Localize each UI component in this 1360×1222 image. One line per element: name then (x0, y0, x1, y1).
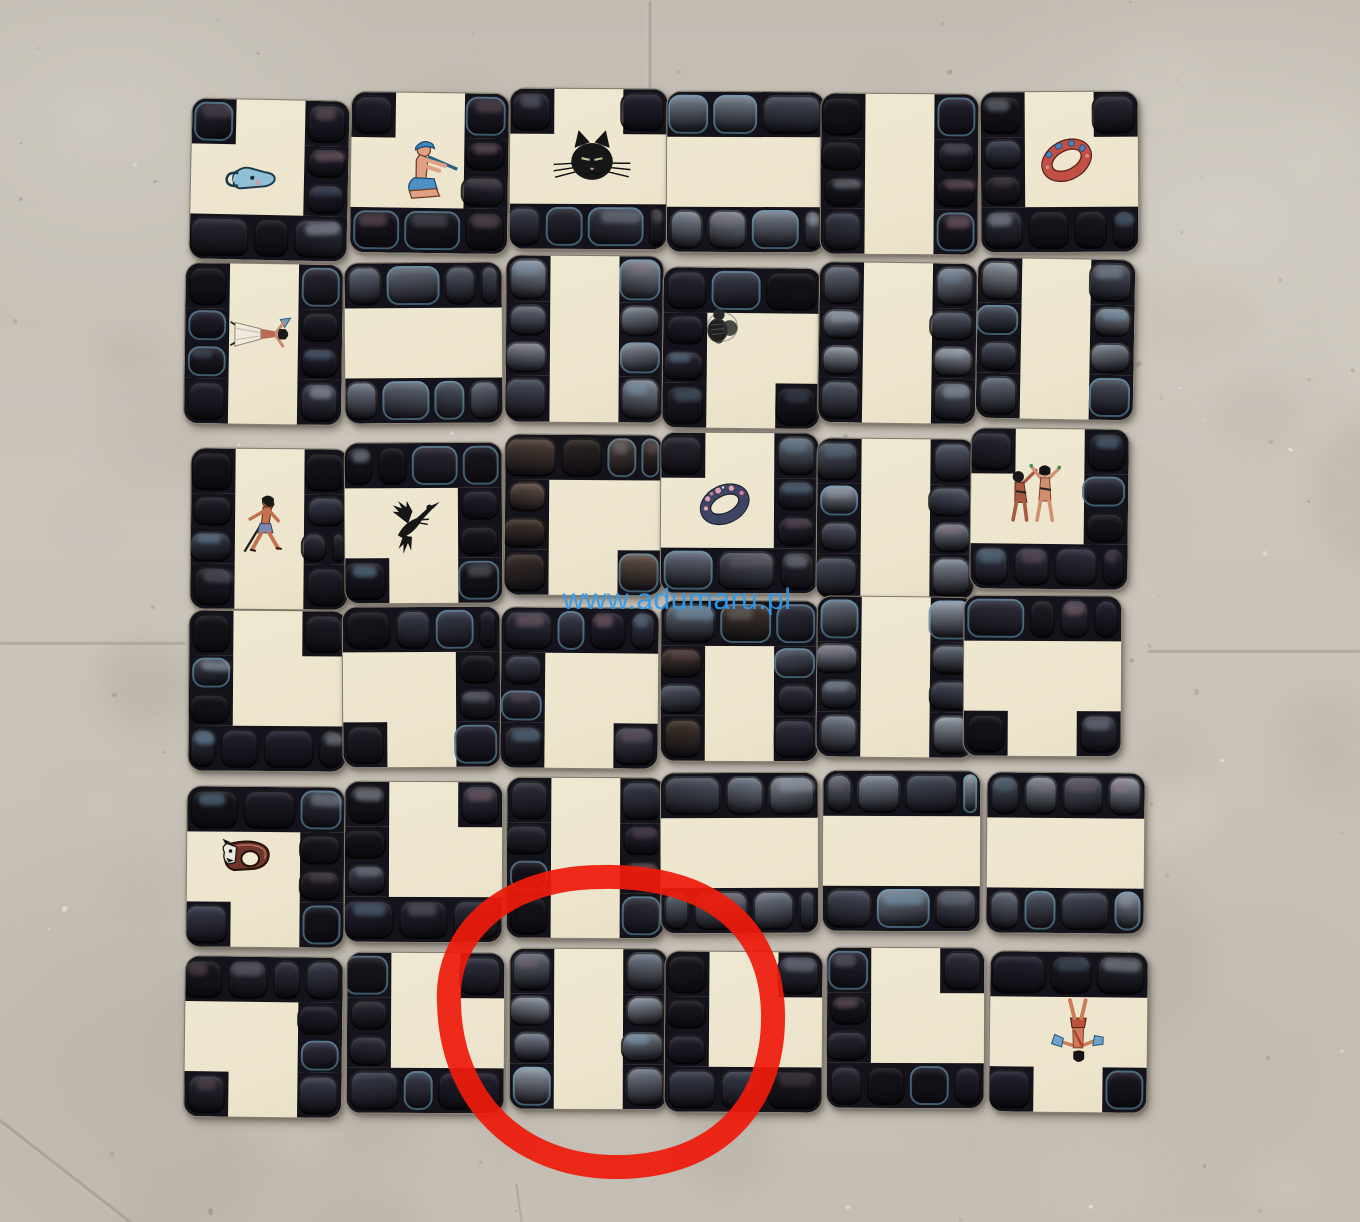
brick-stone (774, 719, 815, 759)
stone-gloss (634, 616, 648, 628)
stone-gloss (645, 442, 660, 454)
brick-stone (189, 693, 230, 723)
brick-stone (935, 889, 978, 929)
maze-tile-r5c2 (344, 781, 502, 942)
brick-stone (503, 725, 542, 765)
tile-path-surface (975, 257, 1137, 422)
stone-gloss (595, 615, 614, 627)
brick-stone (979, 340, 1018, 371)
tile-path-surface (189, 447, 349, 610)
brick-stone (481, 265, 500, 305)
stone-gloss (408, 904, 437, 916)
brick-stone (465, 141, 506, 172)
brick-stone (614, 726, 655, 766)
stone-gloss (833, 179, 862, 189)
brick-stone (775, 386, 817, 426)
brick-stone (190, 789, 238, 829)
stone-gloss (833, 955, 856, 967)
brick-stone (660, 683, 703, 713)
stone-gloss (779, 779, 817, 792)
stone-gloss (203, 106, 234, 118)
brick-stone (508, 482, 547, 512)
brick-stone (620, 861, 661, 891)
brick-stone (299, 835, 342, 866)
brick-stone (512, 1031, 551, 1061)
brick-stone (990, 775, 1020, 815)
maze-tile-r1c6 (980, 91, 1138, 252)
brick-stone (932, 557, 971, 597)
brick-stone (1091, 94, 1135, 134)
brick-stone (344, 829, 387, 859)
stone-gloss (669, 353, 691, 362)
brick-stone (1082, 477, 1126, 508)
brick-stone (967, 598, 1025, 638)
stone-gloss (412, 215, 449, 228)
brick-stone (264, 729, 314, 769)
tile-path-surface (346, 952, 506, 1115)
tile-path-surface (183, 262, 344, 426)
stone-gloss (201, 661, 230, 672)
brick-stone (776, 516, 815, 546)
stone-gloss (196, 1079, 217, 1091)
maze-tile-r2c5 (817, 261, 976, 423)
brick-stone (561, 437, 603, 477)
maze-tile-r3c2 (344, 442, 502, 603)
brick-stone (465, 211, 505, 251)
brick-stone (820, 599, 859, 639)
brick-stone (350, 1000, 389, 1030)
brick-stone (765, 271, 818, 311)
brick-stone (666, 999, 707, 1029)
brick-stone (822, 309, 861, 340)
tile-path-surface (503, 433, 663, 596)
brick-stone (619, 342, 660, 374)
brick-stone (298, 870, 341, 901)
tile-path-surface (349, 91, 510, 255)
stone-gloss (824, 682, 849, 691)
brick-stone (823, 176, 862, 206)
brick-stone (663, 350, 704, 381)
maze-tile-r4c1 (187, 609, 345, 770)
brick-stone (660, 435, 703, 475)
brick-stone (221, 728, 259, 768)
brick-stone (307, 103, 347, 144)
brick-stone (823, 211, 862, 251)
brick-stone (989, 890, 1020, 930)
brick-stone (345, 610, 391, 650)
tile-path-surface (819, 92, 979, 255)
brick-stone (193, 566, 232, 606)
brick-stone (194, 101, 234, 142)
brick-stone (512, 951, 551, 991)
maze-tile-r3c5 (815, 437, 973, 598)
stone-gloss (1103, 959, 1142, 973)
brick-stone (978, 375, 1018, 415)
brick-stone (828, 950, 868, 990)
maze-tile-r1c3 (509, 88, 667, 249)
brick-stone (1029, 598, 1055, 638)
stone-gloss (704, 895, 745, 908)
brick-stone (649, 207, 664, 247)
brick-stone (991, 954, 1045, 994)
stone-gloss (986, 99, 1011, 112)
brick-stone (186, 381, 226, 421)
stone-gloss (315, 108, 337, 120)
musician-icon (385, 131, 468, 214)
brick-stone (668, 94, 709, 134)
maze-tile-r5c1 (185, 785, 343, 946)
brick-stone (820, 380, 860, 420)
brick-stone (300, 347, 339, 378)
brick-stone (227, 959, 267, 999)
brick-stone (1028, 210, 1069, 250)
brick-stone (253, 217, 290, 258)
brick-stone (1060, 599, 1089, 639)
brick-stone (768, 775, 815, 815)
brick-stone (988, 1069, 1031, 1109)
brick-stone (509, 895, 548, 935)
brick-stone (294, 218, 345, 259)
tile-path-surface (663, 950, 823, 1113)
stone-gloss (782, 440, 807, 452)
brick-stone (621, 781, 662, 821)
stone-gloss (1021, 551, 1045, 564)
brick-stone (307, 148, 347, 179)
brick-stone (344, 899, 394, 939)
stone-gloss (945, 181, 976, 190)
tile-path-surface (660, 432, 820, 595)
brick-stone (973, 546, 1009, 586)
brick-stone (505, 377, 547, 419)
brick-stone (762, 95, 822, 135)
stone-gloss (351, 450, 369, 462)
brick-stone (777, 436, 816, 476)
maze-tile-r1c1 (188, 97, 348, 260)
brick-stone (821, 344, 860, 375)
brick-stone (187, 1074, 226, 1114)
brick-stone (300, 532, 327, 562)
brick-stone (403, 1071, 433, 1111)
brick-stone (192, 613, 231, 653)
brick-stone (933, 381, 973, 421)
brick-stone (825, 888, 872, 928)
brick-stone (936, 212, 975, 252)
tile-path-surface (817, 261, 978, 425)
tile-path-surface (660, 772, 820, 935)
stone-gloss (938, 525, 962, 535)
stone-gloss (1095, 267, 1124, 280)
brick-stone (345, 381, 377, 421)
stone-gloss (627, 383, 649, 396)
brick-stone (190, 728, 216, 768)
stone-gloss (355, 868, 380, 877)
stone-gloss (352, 565, 378, 578)
maze-tile-r4c2 (342, 606, 500, 767)
brick-stone (1112, 209, 1136, 249)
maze-tile-r6c1 (183, 955, 342, 1117)
brick-stone (346, 955, 389, 995)
brick-stone (663, 776, 720, 816)
brick-stone (183, 959, 223, 999)
brick-stone (479, 609, 498, 649)
brick-stone (1088, 262, 1132, 303)
brick-stone (1089, 377, 1131, 418)
maze-tile-r4c4 (660, 600, 818, 761)
stone-gloss (943, 271, 963, 283)
stone-gloss (304, 223, 339, 236)
brick-stone (777, 955, 820, 995)
maze-tile-r5c5 (822, 770, 980, 931)
stone-gloss (312, 187, 341, 196)
tile-path-surface (506, 777, 666, 940)
dancer-icon (220, 297, 295, 372)
brick-stone (344, 561, 387, 601)
stone-gloss (309, 873, 335, 882)
brick-stone (348, 784, 387, 824)
tile-path-surface (985, 771, 1145, 934)
brick-stone (829, 1065, 862, 1105)
brick-stone (1074, 209, 1107, 249)
brick-stone (929, 311, 974, 342)
stone-gloss (673, 390, 702, 402)
brick-stone (826, 773, 852, 813)
stone-gloss (827, 489, 852, 498)
stone-gloss (474, 145, 499, 154)
brick-stone (815, 556, 858, 596)
brick-stone (301, 267, 341, 307)
brick-stone (412, 445, 458, 485)
tile-path-surface (980, 91, 1140, 254)
stone-gloss (192, 349, 213, 359)
brick-stone (928, 487, 971, 518)
brick-stone (1050, 954, 1092, 994)
brick-stone (620, 305, 660, 337)
brick-stone (622, 896, 662, 936)
stone-gloss (835, 998, 858, 1008)
brick-stone (396, 609, 431, 649)
brick-stone (509, 258, 548, 300)
maze-tile-r6c2 (346, 952, 504, 1113)
maze-tile-r1c2 (349, 91, 508, 253)
stone-gloss (621, 731, 652, 743)
brick-stone (382, 381, 429, 421)
brick-stone (504, 610, 553, 650)
stone-gloss (515, 615, 544, 627)
stone-gloss (940, 893, 973, 906)
brick-stone (819, 679, 858, 710)
stone-gloss (819, 647, 849, 657)
maze-tile-r4c3 (499, 606, 657, 767)
stone-gloss (305, 351, 332, 360)
brick-stone (799, 890, 816, 930)
stone-gloss (829, 778, 844, 790)
stone-gloss (353, 904, 386, 916)
stone-gloss (988, 214, 1013, 227)
stone-gloss (359, 214, 388, 227)
brick-stone (504, 341, 547, 373)
brick-stone (1089, 342, 1131, 373)
brick-stone (626, 952, 665, 992)
stone-gloss (781, 484, 811, 493)
brick-stone (774, 648, 816, 678)
brick-stone (188, 310, 227, 341)
stone-gloss (632, 829, 657, 838)
brick-stone (466, 96, 507, 136)
stone-gloss (1032, 780, 1054, 792)
stone-gloss (513, 263, 539, 276)
brick-stone (1014, 546, 1050, 586)
brick-stone (504, 655, 543, 686)
brick-stone (349, 1035, 389, 1065)
brick-stone (1102, 547, 1125, 587)
brick-stone (753, 890, 794, 930)
brick-stone (301, 312, 340, 343)
brick-stone (707, 210, 747, 250)
brick-stone (189, 531, 232, 562)
tile-path-surface (963, 595, 1123, 758)
brick-stone (933, 442, 972, 482)
stone-gloss (511, 730, 540, 743)
brick-stone (302, 905, 341, 945)
brick-stone (345, 446, 373, 486)
bird-icon (374, 483, 448, 557)
brick-stone (437, 1071, 501, 1111)
brick-stone (1097, 955, 1146, 995)
brick-stone (503, 517, 546, 547)
brick-stone (509, 206, 541, 246)
stone-gloss (467, 565, 492, 578)
brick-stone (307, 497, 346, 528)
brick-stone (299, 382, 339, 422)
brick-stone (620, 259, 661, 301)
brick-stone (460, 490, 499, 520)
brick-stone (298, 1075, 339, 1115)
brick-stone (505, 437, 557, 477)
brick-stone (435, 609, 473, 649)
stone-gloss (778, 1075, 812, 1087)
brick-stone (459, 956, 502, 996)
brick-stone (319, 729, 344, 769)
brick-stone (620, 92, 665, 132)
brick-stone (459, 525, 500, 555)
tile-path-surface (822, 770, 982, 933)
walker-icon (225, 487, 302, 564)
brick-stone (711, 270, 760, 310)
brick-stone (663, 718, 702, 758)
brick-stone (469, 380, 500, 420)
stone-gloss (942, 386, 969, 398)
cat-icon (551, 122, 631, 202)
tile-path-surface (815, 595, 976, 759)
brick-stone (906, 774, 959, 814)
brick-stone (454, 724, 498, 764)
tile-path-surface (344, 781, 504, 944)
stone-gloss (466, 179, 500, 190)
stone-gloss (626, 1035, 649, 1045)
brick-stone (626, 996, 665, 1026)
stone-gloss (993, 779, 1014, 791)
brick-stone (243, 789, 296, 829)
brick-stone (963, 774, 978, 814)
brick-stone (1115, 891, 1142, 931)
brick-stone (305, 960, 340, 1000)
brick-stone (694, 891, 749, 931)
brick-stone (304, 452, 346, 492)
brick-stone (819, 521, 858, 552)
brick-stone (193, 496, 233, 527)
brick-stone (346, 725, 385, 765)
tile-path-surface (343, 261, 503, 424)
brick-stone (306, 567, 345, 607)
stone-gloss (311, 794, 343, 808)
brick-stone (909, 1066, 949, 1106)
maze-tile-r3c6 (969, 427, 1128, 589)
brick-stone (1086, 512, 1126, 543)
maze-tile-r2c2 (343, 261, 501, 422)
stone-gloss (1056, 959, 1090, 972)
brick-stone (777, 480, 816, 510)
stone-gloss (630, 864, 658, 873)
brick-stone (512, 91, 552, 131)
stone-gloss (944, 145, 971, 155)
maze-tile-r6c5 (826, 947, 984, 1108)
stone-gloss (1102, 311, 1129, 321)
brick-stone (1093, 307, 1132, 338)
brick-stone (936, 177, 975, 207)
brick-stone (966, 713, 1005, 753)
brick-stone (500, 690, 542, 721)
brick-stone (509, 996, 552, 1026)
stone-gloss (232, 964, 263, 976)
brick-stone (776, 684, 815, 714)
maze-tile-r2c6 (975, 257, 1135, 420)
brick-stone (822, 264, 862, 304)
tile-path-surface (187, 609, 347, 772)
brick-stone (546, 206, 583, 246)
stone-gloss (1069, 780, 1098, 792)
brick-stone (588, 207, 644, 247)
brick-stone (463, 445, 500, 485)
stone-gloss (823, 446, 853, 458)
stone-gloss (187, 963, 208, 976)
brick-stone (1054, 547, 1098, 587)
brick-stone (820, 141, 863, 171)
tile-path-surface (666, 91, 826, 254)
brick-stone (666, 270, 707, 310)
maze-tile-r3c4 (660, 432, 818, 593)
brick-stone (976, 305, 1019, 336)
brick-stone (667, 954, 707, 994)
brick-stone (867, 1066, 905, 1106)
brick-stone (347, 864, 387, 894)
maze-tile-r2c3 (504, 254, 662, 421)
brick-stone (188, 265, 228, 305)
stone-gloss (202, 570, 233, 583)
stone-gloss (510, 694, 532, 703)
stone-gloss (309, 387, 333, 400)
tile-path-surface (969, 427, 1130, 591)
stone-gloss (517, 956, 538, 968)
brick-stone (1024, 775, 1057, 815)
brick-stone (187, 345, 226, 376)
brick-stone (445, 265, 476, 305)
tile-path-surface (509, 948, 669, 1111)
stone-gloss (629, 263, 651, 276)
stone-gloss (194, 733, 215, 745)
brick-stone (943, 951, 982, 991)
brick-stone (983, 139, 1022, 169)
brick-stone (641, 438, 660, 478)
